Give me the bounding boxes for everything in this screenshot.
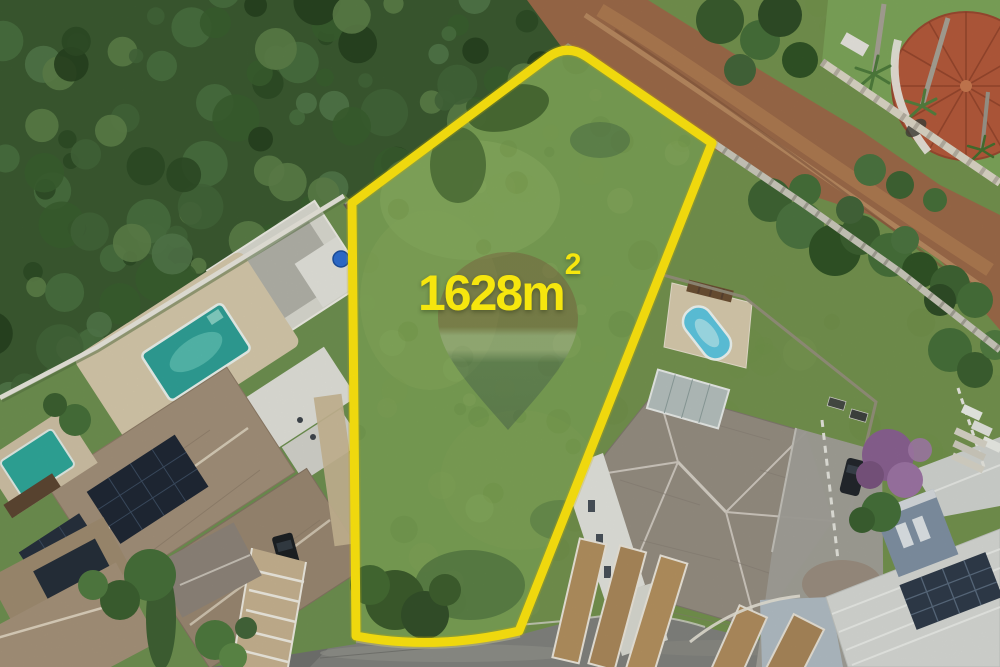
- photo-grain: [0, 0, 1000, 667]
- area-superscript: 2: [565, 248, 582, 281]
- aerial-photo: 1628m2: [0, 0, 1000, 667]
- aerial-photo-canvas: [0, 0, 1000, 667]
- area-label: 1628m2: [418, 268, 581, 318]
- area-value: 1628m: [418, 265, 564, 321]
